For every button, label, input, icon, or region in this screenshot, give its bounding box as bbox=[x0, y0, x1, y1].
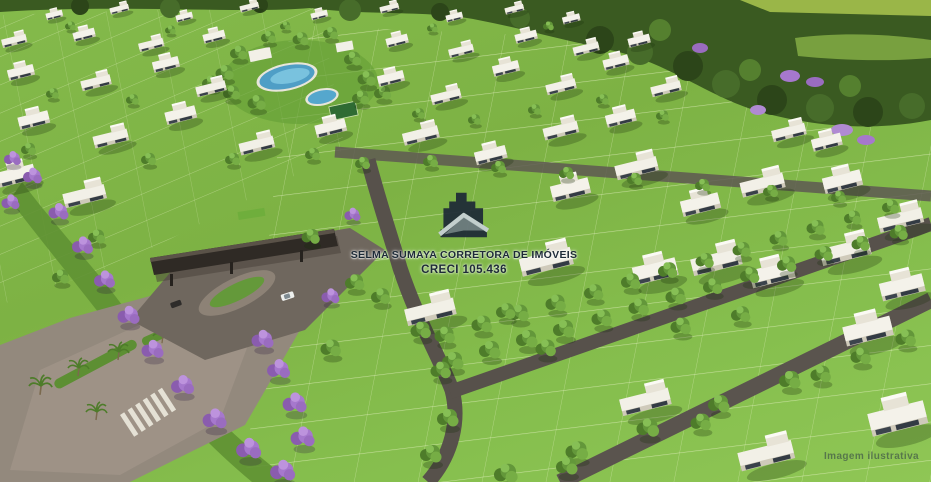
illustrative-image-note: Imagem ilustrativa bbox=[824, 451, 919, 462]
scene-render bbox=[0, 0, 931, 482]
aerial-masterplan-image: SELMA SUMAYA CORRETORA DE IMÓVEIS CRECI … bbox=[0, 0, 931, 482]
